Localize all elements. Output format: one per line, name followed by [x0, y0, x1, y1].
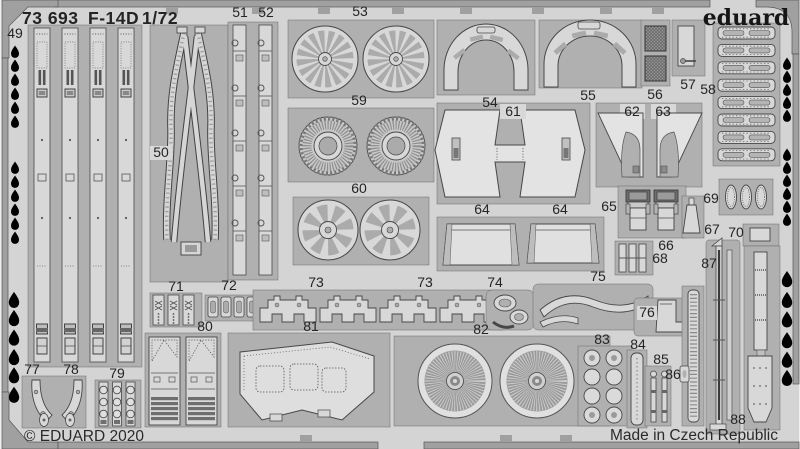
cluster-71-strips	[150, 293, 202, 327]
part-label-55: 55	[580, 87, 596, 103]
cluster-55-arch	[539, 20, 642, 88]
copyright-text: © EDUARD 2020	[24, 428, 144, 445]
origin-text: Made in Czech Republic	[610, 427, 778, 444]
cluster-88-pylon	[744, 246, 780, 430]
part-label-62: 62	[624, 103, 640, 119]
part-label-76: 76	[639, 304, 655, 320]
part-label-82: 82	[473, 321, 489, 337]
part-label-57: 57	[680, 76, 696, 92]
part-label-70: 70	[728, 224, 744, 240]
cluster-56-mesh-grilles	[641, 20, 670, 86]
cluster-73-brackets	[253, 290, 503, 330]
part-label-87: 87	[701, 255, 717, 271]
cluster-59-turbine-faces	[288, 108, 434, 182]
cluster-81-bay-panel	[228, 333, 390, 427]
part-label-80: 80	[197, 318, 213, 334]
part-label-86: 86	[665, 366, 681, 382]
cluster-57-panel	[672, 20, 705, 76]
part-label-53: 53	[352, 3, 368, 19]
part-label-73a: 73	[308, 274, 324, 290]
part-label-61: 61	[505, 103, 521, 119]
cluster-83-discs	[578, 346, 632, 426]
catalog-number: 73 693	[22, 8, 79, 28]
part-label-84: 84	[630, 336, 646, 352]
cluster-77-78-horns	[22, 376, 86, 428]
cluster-84-strip	[627, 350, 647, 428]
cluster-82-engine-fans	[394, 336, 610, 426]
part-label-68: 68	[652, 250, 668, 266]
cluster-80-doors	[145, 333, 221, 427]
part-label-52: 52	[258, 4, 274, 20]
part-label-56: 56	[647, 86, 663, 102]
cluster-51-52-belts	[228, 22, 278, 280]
part-label-50: 50	[153, 144, 169, 160]
part-label-74: 74	[487, 274, 503, 290]
scale-label: 1/72	[142, 8, 178, 28]
part-label-49: 49	[7, 25, 23, 41]
model-name: F-14D	[88, 8, 139, 28]
part-label-65: 65	[601, 198, 617, 214]
part-label-78: 78	[63, 361, 79, 377]
cluster-69-oval-grilles	[719, 179, 773, 215]
cluster-79-strips	[95, 380, 141, 428]
fret-sheet-graphic: 73 693 F-14D 1/72 eduard © EDUARD 2020 M…	[0, 0, 800, 449]
cluster-68-strips	[615, 241, 653, 275]
part-label-64b: 64	[552, 201, 568, 217]
cluster-60-wheels	[293, 197, 429, 265]
part-label-69: 69	[703, 190, 719, 206]
part-label-72: 72	[221, 277, 237, 293]
cluster-62-63-fins	[596, 103, 702, 187]
cluster-53-wheels	[288, 20, 434, 98]
part-label-73b: 73	[417, 274, 433, 290]
part-label-59: 59	[351, 92, 367, 108]
part-label-71: 71	[168, 278, 184, 294]
cluster-58-slotted-strips	[713, 23, 780, 166]
cluster-74-handles	[486, 290, 534, 330]
cluster-70-plate	[743, 224, 779, 246]
part-label-85: 85	[653, 351, 669, 367]
cluster-49-belts	[28, 25, 142, 367]
part-label-60: 60	[351, 180, 367, 196]
part-label-81: 81	[303, 318, 319, 334]
part-label-88: 88	[730, 411, 746, 427]
part-label-63: 63	[655, 103, 671, 119]
part-label-54: 54	[482, 94, 498, 110]
part-label-79: 79	[109, 365, 125, 381]
cluster-72-clips	[205, 295, 259, 321]
part-label-75: 75	[590, 268, 606, 284]
part-label-77: 77	[24, 361, 40, 377]
part-label-83: 83	[594, 331, 610, 347]
cluster-54-arch	[437, 20, 535, 95]
photoetch-fret-scan: 73 693 F-14D 1/72 eduard © EDUARD 2020 M…	[0, 0, 800, 449]
brand-logo: eduard	[703, 5, 790, 31]
part-label-51: 51	[232, 4, 248, 20]
cluster-64-trapezoids	[437, 217, 604, 271]
part-label-64a: 64	[474, 201, 490, 217]
part-label-67: 67	[704, 221, 720, 237]
cluster-86-ladder-strip	[680, 286, 704, 426]
part-label-58: 58	[700, 81, 716, 97]
